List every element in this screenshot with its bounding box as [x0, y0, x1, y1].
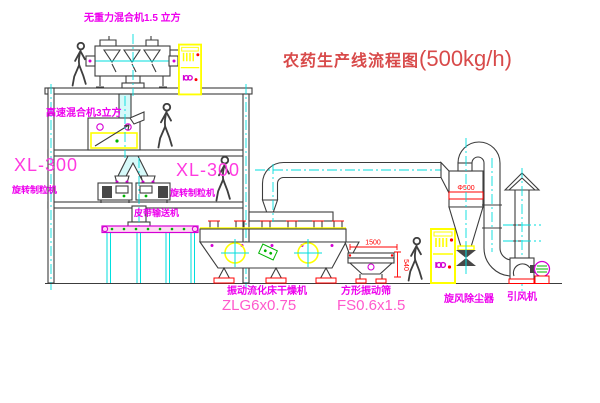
dim-540: 540 [402, 259, 409, 271]
label-granulator-left-name: 旋转制粒机 [12, 185, 57, 196]
label-belt-conveyor: 皮带输送机 [134, 208, 179, 219]
label-cyclone: 旋风除尘器 [444, 294, 494, 305]
label-granulator-left-model: XL-300 [14, 155, 78, 176]
induced-draft-fan [509, 258, 550, 284]
granulator-left [98, 176, 132, 203]
control-cabinet-top [179, 45, 201, 95]
dryer-feet [214, 268, 336, 283]
title-capacity: (500kg/h) [419, 46, 512, 71]
fluid-bed-dryer [200, 221, 346, 283]
belt-conveyor [102, 226, 198, 283]
label-fluid-bed-dryer: 振动流化床干燥机 [227, 286, 307, 297]
person-figure-roof [73, 43, 86, 86]
label-dryer-model: ZLG6x0.75 [222, 297, 296, 314]
label-granulator-right-model: XL-300 [176, 160, 240, 181]
label-high-speed-mixer: 高速混合机3立方 [46, 108, 122, 119]
dryer-exhaust-duct [249, 163, 445, 223]
person-figure-floor2 [158, 104, 171, 148]
high-speed-mixer [88, 96, 144, 158]
granulator-right [136, 176, 170, 203]
label-vibrating-screen: 方形振动筛 [341, 286, 391, 297]
label-granulator-right-name: 旋转制粒机 [170, 188, 215, 199]
vibrating-screen: 1500 540 [345, 240, 409, 284]
dim-1500: 1500 [365, 240, 381, 247]
person-figure-ground [409, 238, 422, 281]
control-cabinet-ground [431, 229, 455, 283]
process-flow-diagram: 1500 540 Φ500 [0, 0, 600, 403]
gravity-free-mixer [86, 34, 180, 96]
label-fan: 引风机 [507, 292, 537, 303]
page-title: 农药生产线流程图(500kg/h) [283, 46, 512, 72]
label-gravity-free-mixer: 无重力混合机1.5 立方 [84, 13, 181, 24]
title-text: 农药生产线流程图 [283, 53, 419, 70]
label-screen-model: FS0.6x1.5 [337, 297, 405, 314]
cyclone-outlet-pipe [482, 158, 512, 276]
